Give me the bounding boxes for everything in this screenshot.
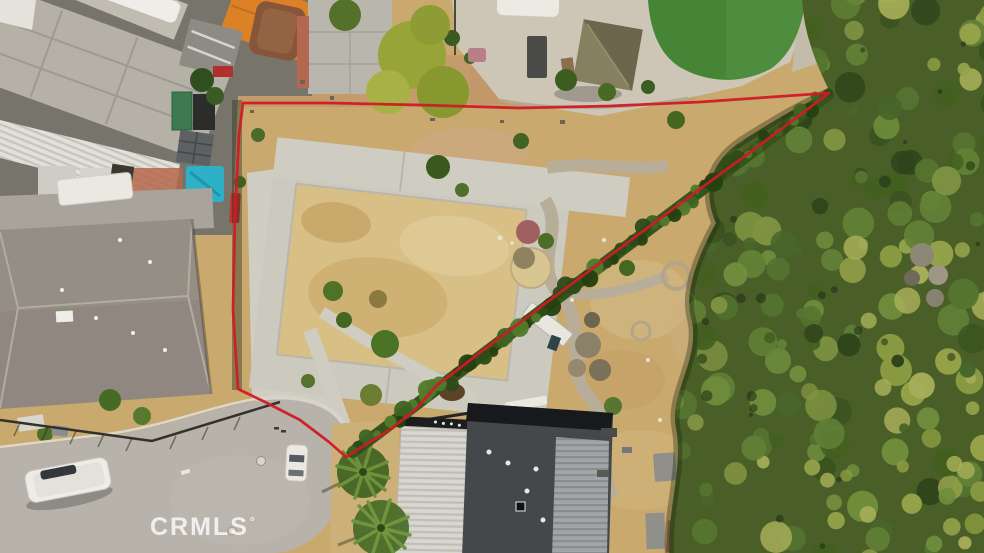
- canopy-gap: [860, 48, 865, 53]
- tree-canopy: [891, 355, 904, 368]
- green-structure: [172, 92, 192, 130]
- canopy-gap: [820, 543, 826, 549]
- tree-canopy: [767, 257, 790, 280]
- tree-canopy: [804, 324, 823, 343]
- tree-canopy: [823, 129, 845, 151]
- tree-canopy: [846, 44, 868, 66]
- tree-canopy: [866, 527, 890, 551]
- tree-canopy: [891, 151, 915, 175]
- canopy-gap: [730, 216, 737, 223]
- tree-canopy: [837, 333, 860, 356]
- canopy-gap: [961, 41, 967, 47]
- roof-hatch: [516, 502, 525, 511]
- tree-canopy: [970, 212, 984, 226]
- roof-grey-ribs: [552, 437, 609, 553]
- tree-canopy: [899, 423, 909, 433]
- tree-canopy: [692, 519, 718, 545]
- tree-canopy: [804, 460, 820, 476]
- dark-shed: [527, 36, 547, 78]
- tree-canopy: [827, 512, 844, 529]
- tree-canopy: [959, 361, 975, 377]
- garden-path: [547, 165, 668, 168]
- tree-canopy: [770, 230, 797, 257]
- canopy-gap: [854, 326, 863, 335]
- tree-canopy: [835, 72, 865, 102]
- tree-canopy: [894, 288, 920, 314]
- tree-canopy: [922, 429, 941, 448]
- tree-canopy: [917, 407, 940, 430]
- tree-canopy: [741, 436, 766, 461]
- canopy-gap: [836, 477, 841, 482]
- tree-canopy: [820, 473, 835, 488]
- pink-car: [468, 48, 486, 62]
- aerial-photo: CRMLS°: [0, 0, 984, 553]
- solar-panels: [176, 130, 214, 166]
- white-car: [285, 444, 308, 481]
- tree-canopy: [966, 401, 980, 415]
- bush: [99, 389, 121, 411]
- tree-canopy: [843, 208, 875, 240]
- tree-canopy: [860, 506, 877, 523]
- manhole: [257, 457, 266, 466]
- tree-canopy: [848, 106, 858, 116]
- tree-canopy: [932, 166, 961, 195]
- tree-canopy: [740, 182, 767, 209]
- bush: [133, 407, 151, 425]
- tree-canopy: [764, 332, 775, 343]
- road-mark: [281, 430, 286, 433]
- canopy-gap: [702, 318, 709, 325]
- tree-canopy: [943, 518, 961, 536]
- tree-canopy: [814, 418, 845, 449]
- car-windshield: [289, 455, 304, 463]
- tree-canopy: [844, 21, 863, 40]
- skylight: [56, 311, 74, 323]
- registered-mark: °: [250, 515, 257, 529]
- canopy-gap: [776, 515, 784, 523]
- tree-canopy: [744, 238, 757, 251]
- canopy-gap: [938, 89, 943, 94]
- tree-canopy: [861, 313, 877, 329]
- tree-canopy: [206, 87, 224, 105]
- tree-canopy: [897, 460, 909, 472]
- tree-canopy: [839, 257, 865, 283]
- tree-canopy: [711, 297, 728, 314]
- tree-canopy: [724, 462, 747, 485]
- canopy-gap: [903, 140, 907, 144]
- canopy-gap: [881, 338, 888, 345]
- road-mark: [274, 427, 279, 430]
- crmls-watermark: CRMLS°: [150, 515, 257, 540]
- debris: [622, 447, 632, 453]
- tree-canopy: [724, 262, 748, 286]
- canopy-gap: [976, 242, 981, 247]
- canopy-gap: [750, 404, 758, 412]
- tree-canopy: [955, 242, 970, 257]
- tree-canopy: [760, 521, 792, 553]
- tree-canopy: [840, 470, 852, 482]
- canopy-roof: [573, 19, 643, 90]
- tree-canopy: [826, 495, 842, 511]
- tree-canopy: [770, 434, 784, 448]
- tree-canopy: [879, 176, 891, 188]
- tree-canopy: [777, 339, 787, 349]
- red-awning: [213, 66, 233, 77]
- tree-canopy: [887, 201, 912, 226]
- tree-canopy: [909, 373, 935, 399]
- debris: [601, 428, 617, 437]
- debris: [597, 470, 609, 477]
- container: [645, 513, 665, 550]
- canopy-gap: [749, 413, 753, 417]
- tree-canopy: [844, 236, 868, 260]
- tree-canopy: [939, 488, 956, 505]
- tree-canopy: [790, 366, 807, 383]
- canopy-gap: [831, 286, 838, 293]
- tree-canopy: [723, 233, 737, 247]
- canopy-gap: [966, 161, 975, 170]
- tree-canopy: [697, 354, 707, 364]
- tree-canopy: [880, 245, 902, 267]
- tree-canopy: [687, 414, 703, 430]
- tree-canopy: [902, 494, 922, 514]
- tree-canopy: [948, 279, 979, 310]
- dry-tree: [513, 247, 535, 269]
- hedge-bush: [540, 308, 548, 316]
- tree-canopy: [958, 63, 971, 76]
- tree-canopy: [927, 58, 940, 71]
- terracotta-strip: [297, 16, 309, 88]
- tree-canopy: [699, 483, 713, 497]
- tree-canopy: [816, 232, 833, 249]
- tree-canopy: [776, 392, 801, 417]
- tree-canopy: [805, 390, 837, 422]
- tree-canopy: [958, 536, 971, 549]
- tree-canopy: [812, 198, 828, 214]
- tree-canopy: [935, 348, 961, 374]
- watermark-text: CRMLS: [150, 513, 249, 541]
- tree-canopy: [920, 191, 952, 223]
- canopy-gap: [947, 353, 955, 361]
- tree-canopy: [877, 96, 902, 121]
- canopy-gap: [747, 391, 757, 401]
- tree-canopy: [875, 379, 892, 396]
- tree-canopy: [926, 536, 942, 552]
- canopy-gap: [701, 390, 712, 401]
- rv-roof: [497, 0, 560, 17]
- tree-canopy: [855, 171, 867, 183]
- canopy-gap: [736, 294, 746, 304]
- tree-canopy: [933, 81, 959, 107]
- car-rear-window: [288, 470, 303, 477]
- canopy-gap: [818, 291, 826, 299]
- canopy-gap: [756, 293, 766, 303]
- tree-canopy: [947, 456, 963, 472]
